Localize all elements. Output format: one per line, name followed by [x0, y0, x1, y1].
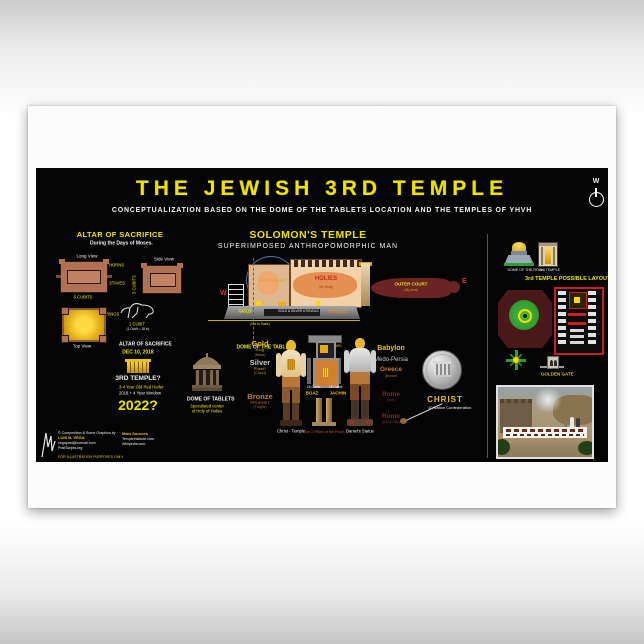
menorah-mark	[323, 368, 329, 377]
outer-court-note: (My Arm)	[394, 289, 429, 292]
pillar-dim-left: 18 Cubits	[307, 386, 319, 389]
solomon-title: SOLOMON'S TEMPLE	[218, 230, 398, 241]
horn	[59, 259, 65, 264]
horn	[177, 263, 183, 268]
temple-top-plan: ARK 18 Cubits 18 Cubits BOAZ JACHIN	[307, 332, 341, 428]
gold-utensil	[316, 301, 320, 306]
metal-gold-note: (Head)	[251, 353, 269, 357]
gold-utensil	[256, 301, 261, 306]
altar-subheading: During the Days of Moses.	[90, 241, 150, 246]
pillar-jachin	[326, 398, 332, 422]
pillar-boaz	[316, 398, 322, 422]
credit-site: PostScripts.org	[58, 446, 82, 450]
poster-print-area: THE JEWISH 3RD TEMPLE CONCEPTUALIZATION …	[36, 168, 608, 462]
man-hand-shape	[448, 281, 460, 293]
horn	[61, 335, 69, 343]
part	[67, 270, 101, 284]
dome-tablets-note2: of Holy of Holies	[187, 409, 227, 413]
part	[558, 291, 566, 347]
side-view-label: Side View	[153, 257, 175, 262]
utensils-strip: GOLD & SILVER UTENSILS	[264, 309, 320, 316]
holies-room: HOLIES (My Body)	[290, 259, 362, 308]
part	[506, 429, 584, 432]
holies-note: (My Body)	[309, 286, 344, 289]
banner	[503, 427, 587, 438]
compass-rose-icon	[506, 350, 526, 370]
figure-feet	[280, 420, 302, 426]
pillar-base	[312, 422, 336, 426]
part	[550, 360, 553, 366]
altar-title2: ALTAR OF SACRIFICE	[119, 342, 157, 347]
layout-heading: 3rd TEMPLE POSSIBLE LAYOUT	[525, 276, 587, 282]
cubit-dimension: 1 CUBIT	[127, 322, 148, 326]
metal-silver-note: (Chest)	[250, 371, 270, 375]
horn	[141, 263, 147, 268]
part	[506, 434, 584, 437]
part	[545, 248, 551, 264]
figure-arm	[276, 353, 281, 377]
poster-paper: THE JEWISH 3RD TEMPLE CONCEPTUALIZATION …	[28, 106, 616, 508]
dome-of-tablets-icon	[192, 352, 222, 395]
porch-pillar	[361, 263, 370, 306]
empire-rome-clay-note: (Iron & Clay)	[381, 421, 402, 424]
staves-label: STAVES	[109, 281, 125, 285]
heifer-note: 3-4 Year Old Red Heifer	[119, 385, 157, 389]
pillars-caption: The 2 Pillars of the Porch	[304, 430, 344, 434]
holies-label: HOLIES	[291, 276, 361, 282]
metal-bronze-note: (Thighs)	[249, 405, 271, 409]
east-marker: E	[462, 278, 467, 285]
dome-tablets-name: DOME OF TABLETS	[187, 397, 227, 402]
product-page-background: THE JEWISH 3RD TEMPLE CONCEPTUALIZATION …	[0, 0, 644, 644]
west-compass-icon: W	[584, 178, 608, 216]
empire-medo-persia: Medo-Persia	[364, 357, 418, 363]
altar-heading: ALTAR OF SACRIFICE	[60, 231, 180, 239]
part	[313, 358, 339, 388]
leg-gap	[290, 390, 292, 420]
scale-note: (Not to Scale)	[245, 323, 275, 326]
temple-coin-icon	[422, 350, 462, 390]
part	[568, 322, 586, 325]
empire-greece-note: (Bronze)	[380, 375, 403, 378]
shrub	[578, 441, 594, 455]
part	[554, 360, 557, 366]
outer-court-label: OUTER COURT	[394, 282, 429, 287]
part	[539, 243, 557, 246]
utensils-label: GOLD & SILVER UTENSILS	[278, 310, 306, 313]
christ-label: CHRIST	[417, 396, 473, 404]
stave-end	[56, 275, 61, 278]
solomon-subtitle: SUPERIMPOSED ANTHROPOMORPHIC MAN	[208, 243, 408, 250]
horn	[61, 307, 69, 315]
part	[574, 297, 580, 303]
baseline	[208, 320, 360, 321]
part	[504, 263, 534, 266]
red-heifer-ceremony-photo	[496, 385, 594, 459]
smoke	[534, 387, 562, 413]
west-marker: W	[220, 290, 227, 297]
pillar-boaz-label: BOAZ	[306, 391, 319, 396]
part	[553, 247, 555, 265]
temple-icon	[127, 359, 149, 373]
pillar-jachin-label: JACHIN	[330, 391, 343, 396]
sacrifice-lamb-icon	[118, 298, 156, 320]
platform-bronze-label: BRONZE	[329, 309, 346, 314]
stone-cut-without-hands	[400, 418, 407, 424]
clay-speck	[366, 421, 370, 424]
dome-of-rock-icon	[504, 242, 534, 268]
source-2: Wikipedia.com	[122, 442, 145, 446]
section-divider	[487, 234, 488, 458]
part	[588, 291, 596, 347]
height-dimension: 3 CUBITS	[132, 275, 136, 294]
credit-line1: © Composition & Some Graphics by	[58, 431, 116, 435]
gold-utensil	[278, 302, 286, 306]
figure-arm	[344, 350, 349, 373]
figure-arm	[301, 353, 306, 377]
part	[523, 314, 527, 318]
credit-disclaimer: FOR ILLUSTRATION PURPOSES ONLY	[58, 455, 124, 459]
altar-long-view	[60, 261, 108, 293]
empire-rome-iron-note: (Iron)	[381, 399, 402, 402]
platform-gold-label: GOLD	[238, 309, 253, 314]
dome-center-line	[253, 258, 254, 344]
stave-end	[107, 275, 112, 278]
chest-emblem	[287, 359, 295, 370]
pillar-dim-right: 18 Cubits	[329, 386, 341, 389]
window-note: 2018 + 4 Year Window	[119, 391, 157, 395]
golden-gate-icon	[540, 355, 564, 369]
golden-gate-label: GOLDEN GATE	[541, 372, 563, 377]
figure-belly	[350, 372, 370, 384]
temple-mount-plan	[498, 287, 608, 353]
long-view-label: Long View	[76, 254, 99, 259]
ark-square	[320, 345, 328, 353]
ark-label: ARK	[335, 345, 342, 348]
part	[547, 356, 559, 369]
compass-ring	[589, 192, 604, 207]
dome-rock-label: DOME OF THE ROCK	[508, 268, 531, 272]
part	[541, 247, 543, 265]
source-1: TempleInstitute.com	[122, 437, 154, 441]
part	[434, 364, 450, 375]
clay-speck	[350, 421, 354, 424]
stairs-ladder	[228, 284, 244, 306]
top-view-label: Top View	[72, 344, 92, 349]
part	[500, 399, 532, 403]
part	[568, 313, 586, 316]
part	[127, 362, 149, 373]
third-temple-icon-label: 3rd TEMPLE	[540, 268, 555, 272]
altar-date: DEC 10, 2018	[119, 350, 157, 355]
horns-label: HORNS	[109, 263, 124, 267]
left-figure-label: Christ - Temple	[276, 429, 306, 433]
third-temple-icon	[538, 242, 558, 267]
part	[570, 329, 584, 345]
part	[433, 375, 451, 377]
right-figure-label: Daniel's Statue	[345, 429, 375, 433]
christ-note: 10 Nation Confederation.	[428, 406, 462, 410]
part	[513, 357, 519, 363]
poster-title: THE JEWISH 3RD TEMPLE	[82, 178, 562, 200]
poster-subtitle: CONCEPTUALIZATION BASED ON THE DOME OF T…	[82, 207, 562, 214]
width-dimension: 5 CUBITS	[70, 295, 97, 299]
horn	[99, 307, 107, 315]
altar-top-view	[62, 308, 106, 342]
holy-of-holies-label: HOLY OF HOLIES	[259, 280, 279, 283]
window-band	[291, 260, 361, 267]
leg-gap	[359, 386, 361, 419]
part	[127, 362, 149, 373]
temple-floor-plan	[554, 287, 604, 355]
empire-greece: Greece	[368, 367, 414, 374]
altar-side-view	[142, 265, 182, 294]
empire-babylon: Babylon	[366, 345, 416, 352]
credit-email: vegapost@hotmail.com	[58, 441, 96, 445]
part	[505, 255, 533, 263]
dome-of-tablets-block: DOME OF TABLETS Speculated center of Hol…	[167, 352, 247, 416]
year-question: 2022?	[100, 398, 176, 413]
compass-letter: W	[584, 178, 608, 185]
author-logo-icon	[40, 431, 56, 458]
figure-waist	[282, 377, 300, 387]
temple-question: 3RD TEMPLE?	[100, 376, 176, 383]
third-temple-question-block: ALTAR OF SACRIFICE DEC 10, 2018 3RD TEMP…	[100, 342, 176, 422]
cubit-note: (1 Cubit = 18 in)	[127, 328, 148, 331]
part	[307, 358, 311, 384]
part	[150, 273, 176, 287]
christ-temple-figure	[275, 340, 307, 428]
